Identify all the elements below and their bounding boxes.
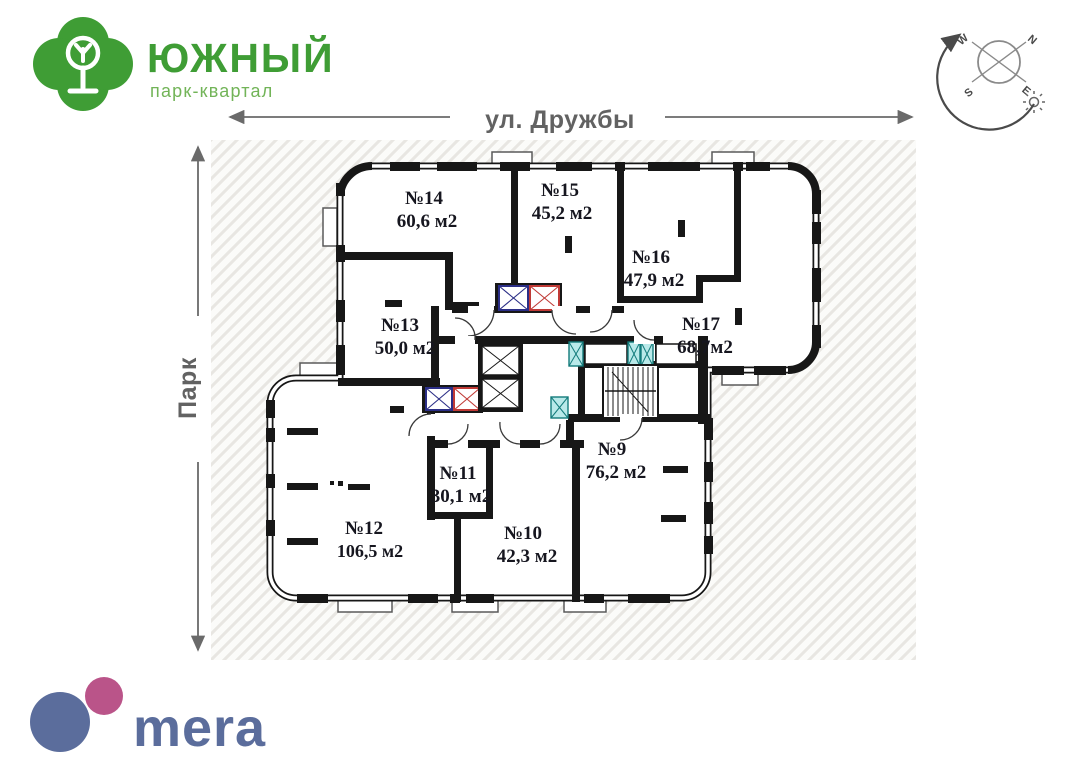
- compass-icon: W N S E: [937, 32, 1045, 130]
- park-label: Парк: [174, 357, 202, 419]
- developer-name: mera: [133, 698, 266, 758]
- svg-text:№17: №17: [682, 314, 721, 335]
- floor-plan-page: ул. Дружбы Парк W N S E: [0, 0, 1080, 764]
- svg-text:№11: №11: [439, 463, 476, 484]
- sun-icon: [1023, 91, 1045, 113]
- floor-plan-canvas: ул. Дружбы Парк W N S E: [0, 0, 1080, 764]
- mera-pink-circle-icon: [85, 677, 123, 715]
- compass-rotation-arrow-icon: [937, 36, 1034, 130]
- developer-logo: mera: [30, 677, 266, 758]
- svg-text:60,6 м2: 60,6 м2: [397, 211, 457, 232]
- compass-west-letter: W: [955, 32, 971, 48]
- compass-east-letter: E: [1019, 84, 1032, 98]
- svg-text:50,0 м2: 50,0 м2: [375, 338, 435, 359]
- svg-text:№9: №9: [598, 439, 627, 460]
- svg-text:№13: №13: [381, 315, 419, 336]
- svg-text:№14: №14: [405, 188, 444, 209]
- street-annotation: ул. Дружбы: [230, 106, 912, 134]
- mera-blue-circle-icon: [30, 692, 90, 752]
- elevator-block-upper: [495, 283, 562, 313]
- svg-text:№15: №15: [541, 180, 579, 201]
- project-logo: ЮЖНЫЙ парк-квартал: [33, 17, 335, 111]
- svg-text:106,5 м2: 106,5 м2: [337, 541, 403, 561]
- svg-text:№16: №16: [632, 247, 670, 268]
- park-annotation: Парк: [174, 147, 202, 650]
- street-label: ул. Дружбы: [485, 106, 635, 134]
- svg-text:30,1 м2: 30,1 м2: [431, 486, 491, 507]
- tree-logo-icon: [33, 17, 133, 111]
- compass-south-letter: S: [962, 86, 975, 100]
- project-tagline: парк-квартал: [150, 81, 273, 101]
- svg-text:47,9 м2: 47,9 м2: [624, 270, 684, 291]
- svg-text:76,2 м2: 76,2 м2: [586, 462, 646, 483]
- project-name: ЮЖНЫЙ: [147, 35, 335, 81]
- elevator-block-lower: [422, 385, 483, 413]
- svg-text:42,3 м2: 42,3 м2: [497, 546, 557, 567]
- svg-text:68,7м2: 68,7м2: [677, 337, 733, 358]
- svg-text:45,2 м2: 45,2 м2: [532, 203, 592, 224]
- compass-north-letter: N: [1025, 33, 1039, 47]
- svg-text:№10: №10: [504, 523, 542, 544]
- staircase: [603, 365, 658, 418]
- svg-text:№12: №12: [345, 518, 383, 539]
